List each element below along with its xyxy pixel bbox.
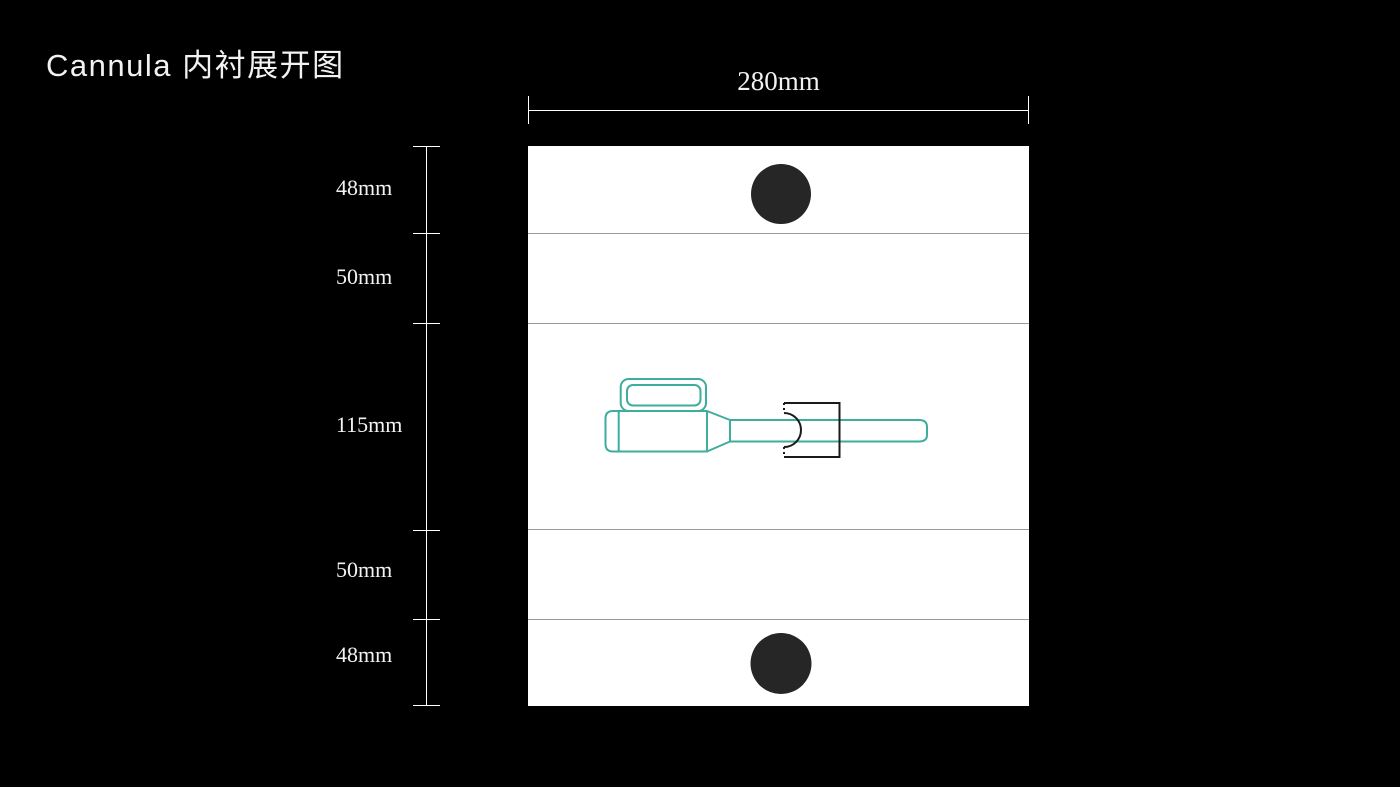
side-dimension-tick-5 — [413, 619, 440, 620]
canvas: Cannula 内衬展开图 280mm 48mm 50mm 115mm 50mm… — [0, 0, 1400, 787]
side-dimension-label-4: 50mm — [336, 559, 426, 581]
punch-hole-top — [751, 164, 811, 224]
cannula-drawing — [528, 146, 1029, 707]
cannula-body — [606, 411, 708, 452]
width-dimension-tick-right — [1028, 96, 1029, 124]
side-dimension-label-5: 48mm — [336, 644, 426, 666]
side-dimension-label-3: 115mm — [336, 414, 426, 436]
cannula-shaft — [707, 411, 927, 452]
page-title: Cannula 内衬展开图 — [46, 40, 345, 85]
width-dimension-tick-left — [528, 96, 529, 124]
side-dimension-tick-2 — [413, 233, 440, 234]
width-dimension-label: 280mm — [528, 66, 1029, 97]
cannula-outline — [606, 379, 928, 452]
cannula-flange-inner — [627, 385, 701, 406]
clamp-solid-edges — [784, 403, 840, 457]
side-dimension-tick-4 — [413, 530, 440, 531]
clamp-outline — [784, 403, 840, 457]
width-dimension-line — [528, 110, 1029, 111]
side-dimension-tick-6 — [413, 705, 440, 706]
side-dimension-label-2: 50mm — [336, 266, 426, 288]
side-dimension-tick-3 — [413, 323, 440, 324]
punch-hole-bottom — [751, 633, 812, 694]
side-dimension-line — [426, 146, 427, 706]
side-dimension-tick-1 — [413, 146, 440, 147]
side-dimension-label-1: 48mm — [336, 177, 426, 199]
